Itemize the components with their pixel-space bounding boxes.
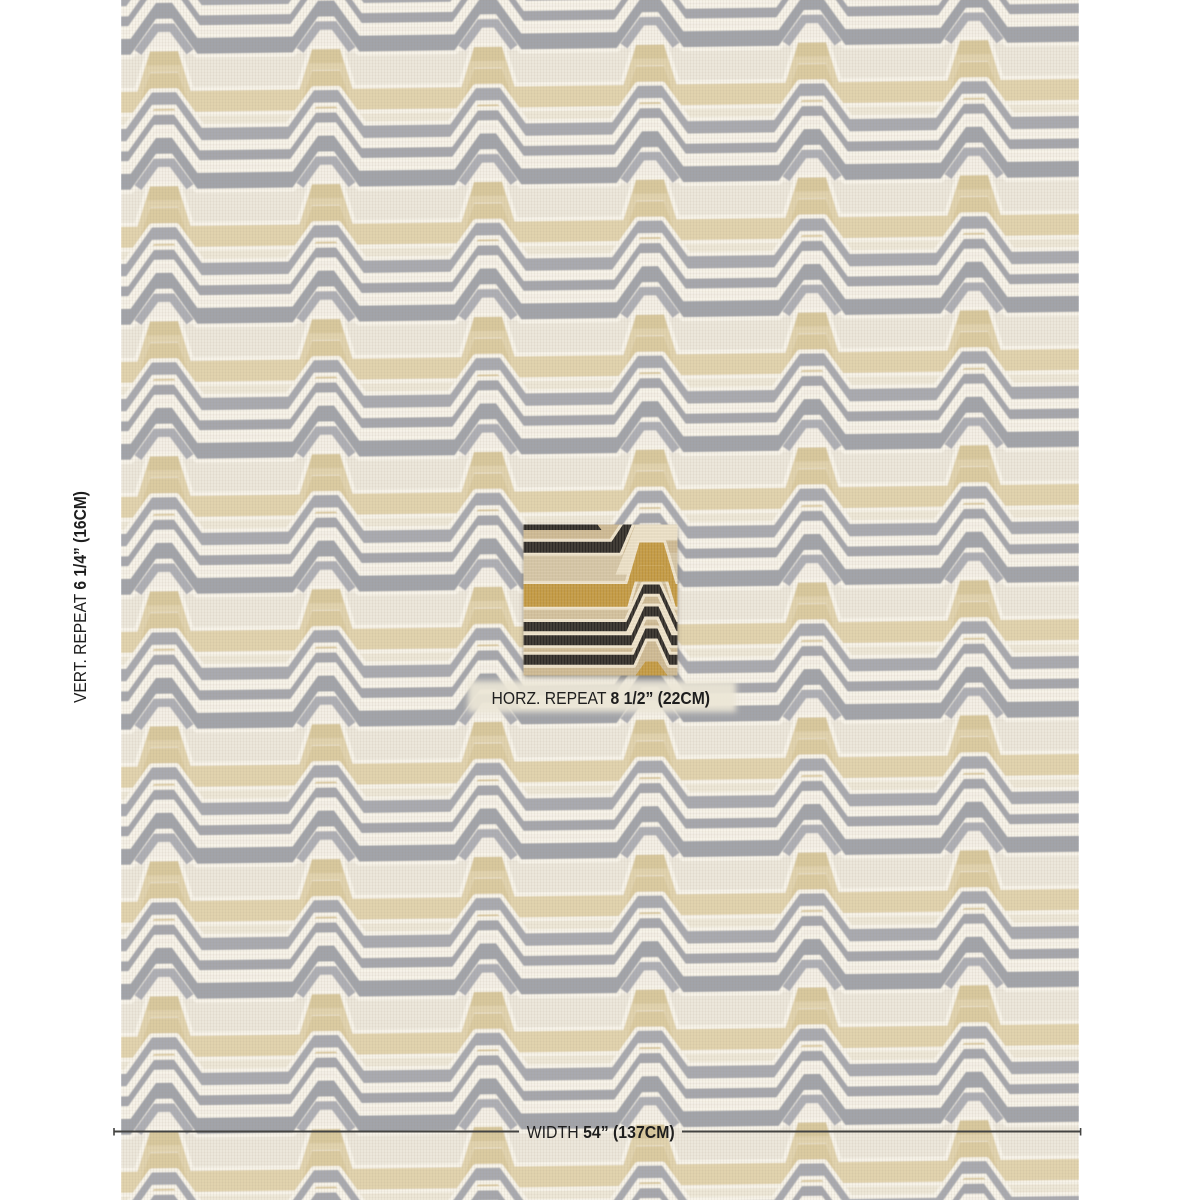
svg-text:WIDTH 54” (137CM): WIDTH 54” (137CM) xyxy=(527,1122,675,1142)
svg-text:HORZ. REPEAT 8 1/2” (22CM): HORZ. REPEAT 8 1/2” (22CM) xyxy=(492,688,711,708)
svg-text:VERT. REPEAT 6 1/4” (16CM): VERT. REPEAT 6 1/4” (16CM) xyxy=(70,491,90,703)
